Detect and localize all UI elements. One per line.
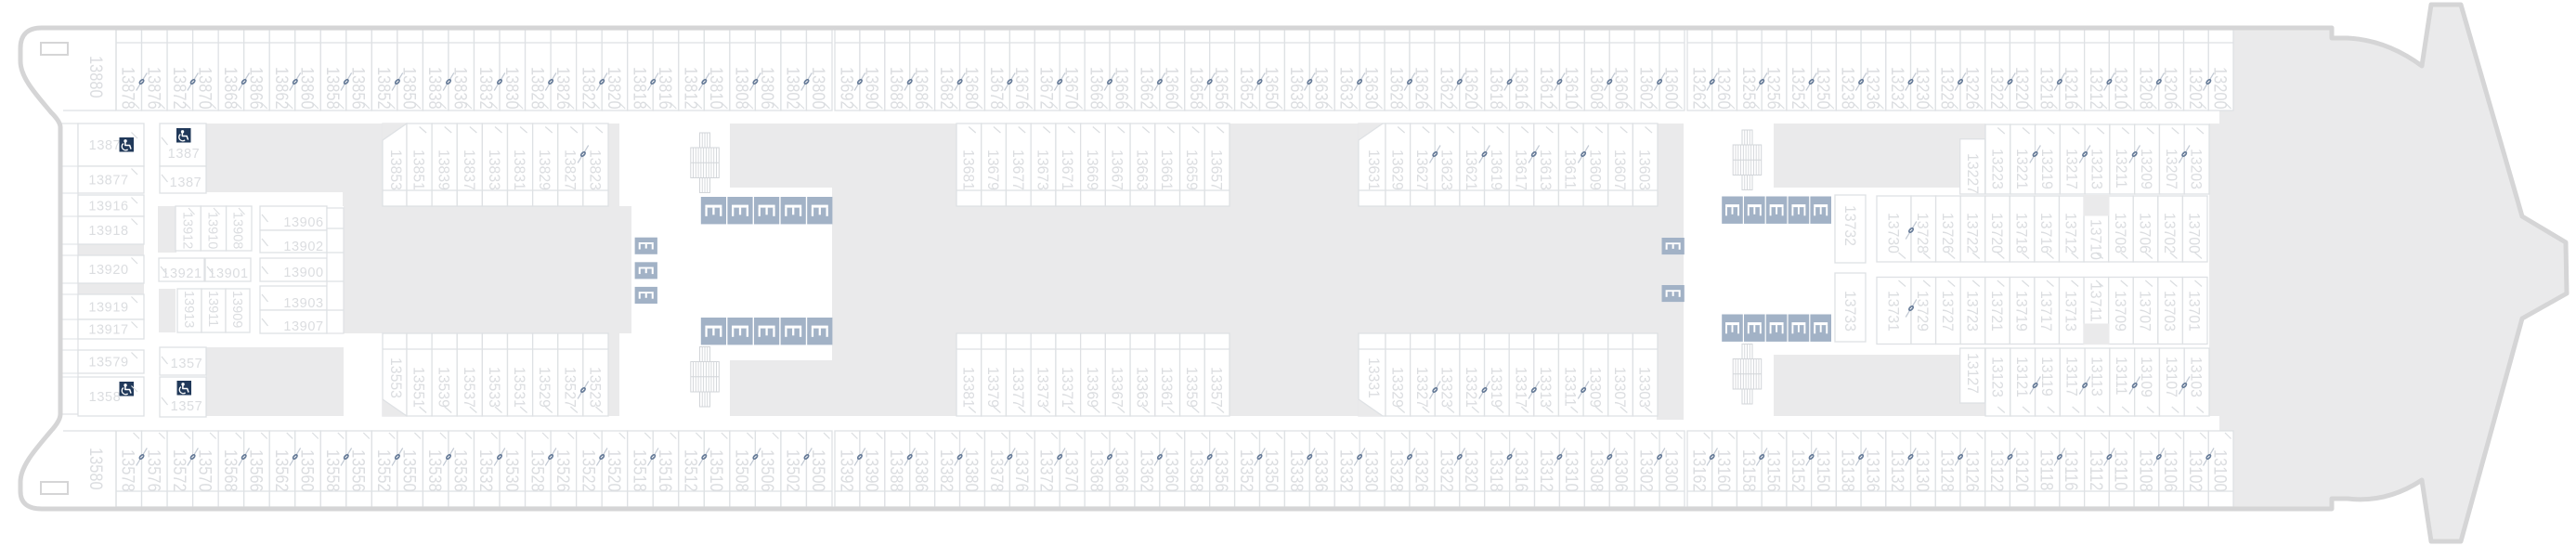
svg-text:13853: 13853 [387,149,405,190]
svg-text:13732: 13732 [1841,205,1859,246]
svg-text:13536: 13536 [450,449,471,492]
svg-text:13359: 13359 [1183,367,1201,408]
svg-text:13906: 13906 [283,215,323,230]
svg-text:13902: 13902 [283,240,323,254]
svg-text:13717: 13717 [2037,291,2055,331]
svg-text:13318: 13318 [1487,449,1507,492]
svg-text:13328: 13328 [1386,449,1407,492]
svg-text:13223: 13223 [1988,149,2006,189]
svg-text:13708: 13708 [2112,213,2129,253]
svg-text:13720: 13720 [1988,213,2006,253]
svg-text:13309: 13309 [1586,367,1604,408]
svg-text:13222: 13222 [1987,67,2008,110]
svg-text:13357: 13357 [1207,367,1225,408]
svg-text:13603: 13603 [1635,149,1653,190]
svg-text:13202: 13202 [2186,67,2206,110]
svg-text:13388: 13388 [887,449,907,492]
svg-text:13688: 13688 [887,67,907,110]
svg-text:13386: 13386 [912,449,932,492]
svg-text:13907: 13907 [283,319,323,334]
svg-text:13579: 13579 [88,356,128,370]
svg-text:13377: 13377 [1009,367,1027,408]
svg-text:13150: 13150 [1814,449,1834,492]
svg-text:13917: 13917 [88,323,128,338]
svg-text:13523: 13523 [586,367,604,408]
svg-text:13518: 13518 [630,449,650,492]
svg-text:13621: 13621 [1463,149,1480,190]
svg-text:13663: 13663 [1133,149,1151,190]
svg-text:13209: 13209 [2138,149,2155,189]
svg-text:13562: 13562 [272,449,293,492]
svg-text:13823: 13823 [586,149,604,190]
svg-text:13381: 13381 [959,367,977,408]
svg-text:13510: 13510 [707,449,727,492]
svg-text:13100: 13100 [2210,449,2231,492]
svg-text:13662: 13662 [1137,67,1157,110]
svg-text:13719: 13719 [2012,291,2030,331]
svg-text:13711: 13711 [2087,282,2104,322]
svg-text:13921: 13921 [162,266,202,281]
svg-text:13208: 13208 [2136,67,2156,110]
svg-text:13136: 13136 [1863,449,1883,492]
svg-text:13361: 13361 [1158,367,1176,408]
svg-text:13527: 13527 [561,367,579,408]
svg-text:13158: 13158 [1738,449,1759,492]
svg-text:13908: 13908 [229,212,244,249]
svg-text:13373: 13373 [1034,367,1051,408]
svg-text:13730: 13730 [1884,213,1902,253]
svg-text:13878: 13878 [118,67,138,110]
svg-text:13319: 13319 [1488,367,1505,408]
svg-text:13538: 13538 [425,449,446,492]
svg-text:13529: 13529 [536,367,553,408]
svg-text:13322: 13322 [1437,449,1457,492]
svg-text:13350: 13350 [1262,449,1282,492]
svg-text:13612: 13612 [1537,67,1557,110]
svg-text:13311: 13311 [1562,367,1580,407]
svg-text:13520: 13520 [605,449,625,492]
svg-text:13116: 13116 [2062,449,2082,490]
svg-text:13526: 13526 [553,449,573,492]
svg-text:13356: 13356 [1212,449,1232,492]
svg-text:13838: 13838 [425,67,446,110]
svg-text:13539: 13539 [435,367,452,408]
svg-text:13570: 13570 [195,449,215,492]
svg-text:13672: 13672 [1036,67,1057,110]
svg-text:13911: 13911 [205,291,220,327]
svg-text:13368: 13368 [1086,449,1107,492]
svg-text:13566: 13566 [246,449,267,492]
svg-text:13682: 13682 [937,67,957,110]
svg-text:13111: 13111 [2113,357,2130,396]
svg-text:13107: 13107 [2163,357,2180,397]
svg-text:13306: 13306 [1611,449,1632,492]
svg-text:1387: 1387 [170,175,202,190]
svg-text:13317: 13317 [1512,367,1529,408]
svg-text:13360: 13360 [1162,449,1182,492]
svg-text:13722: 13722 [1963,213,1981,253]
svg-text:13390: 13390 [862,449,882,492]
svg-text:13307: 13307 [1611,367,1629,408]
svg-text:13858: 13858 [323,67,344,110]
svg-text:13331: 13331 [1365,357,1383,398]
svg-text:13207: 13207 [2163,149,2180,189]
svg-text:13378: 13378 [987,449,1008,492]
svg-text:13880: 13880 [86,56,107,98]
svg-text:13313: 13313 [1537,367,1555,408]
svg-text:1357: 1357 [171,399,203,414]
svg-text:13522: 13522 [579,449,599,492]
svg-text:13531: 13531 [511,367,528,408]
svg-text:13127: 13127 [1964,353,1982,394]
svg-text:13802: 13802 [783,67,803,110]
svg-text:13102: 13102 [2186,449,2206,492]
svg-text:1357: 1357 [171,357,203,371]
svg-text:13300: 13300 [1661,449,1682,492]
svg-text:13627: 13627 [1413,149,1431,190]
svg-text:13362: 13362 [1137,449,1157,492]
svg-text:1358: 1358 [89,390,122,405]
svg-text:13710: 13710 [2087,219,2104,260]
svg-text:13372: 13372 [1036,449,1057,492]
svg-text:13622: 13622 [1437,67,1457,110]
svg-text:13920: 13920 [88,263,128,278]
svg-text:13369: 13369 [1084,367,1101,408]
svg-text:13379: 13379 [984,367,1002,408]
svg-text:13733: 13733 [1841,291,1859,331]
svg-text:13556: 13556 [348,449,369,492]
svg-text:13679: 13679 [984,149,1002,190]
svg-text:13560: 13560 [297,449,318,492]
svg-text:13832: 13832 [476,67,497,110]
svg-text:13382: 13382 [937,449,957,492]
svg-text:13327: 13327 [1413,367,1431,408]
svg-text:13320: 13320 [1462,449,1482,492]
svg-text:13818: 13818 [630,67,650,110]
svg-text:13623: 13623 [1438,149,1455,190]
svg-text:13903: 13903 [283,296,323,311]
svg-text:13121: 13121 [2013,357,2031,397]
svg-text:13721: 13721 [1988,291,2006,331]
svg-text:13312: 13312 [1537,449,1557,492]
svg-text:13512: 13512 [681,449,701,492]
svg-text:13551: 13551 [410,367,427,408]
svg-text:13232: 13232 [1888,67,1908,110]
svg-text:13900: 13900 [283,266,323,280]
svg-text:13112: 13112 [2087,449,2107,490]
svg-text:13669: 13669 [1084,149,1101,190]
svg-text:13716: 13716 [2037,213,2055,253]
svg-text:13668: 13668 [1086,67,1107,110]
svg-text:13916: 13916 [88,200,128,214]
svg-text:13217: 13217 [2063,149,2081,189]
svg-text:13872: 13872 [169,67,189,110]
svg-text:13703: 13703 [2161,291,2179,331]
svg-text:13302: 13302 [1636,449,1657,492]
svg-text:13528: 13528 [527,449,548,492]
svg-text:13901: 13901 [208,266,248,281]
svg-text:13631: 13631 [1365,149,1383,190]
svg-text:13726: 13726 [1939,213,1957,253]
svg-text:13516: 13516 [656,449,676,492]
svg-text:13221: 13221 [2013,149,2031,189]
svg-text:13707: 13707 [2136,291,2153,331]
svg-text:13602: 13602 [1636,67,1657,110]
svg-text:13910: 13910 [204,212,219,249]
svg-text:13323: 13323 [1438,367,1455,408]
svg-text:13659: 13659 [1183,149,1201,190]
svg-text:13120: 13120 [2011,449,2032,492]
svg-text:13700: 13700 [2186,213,2204,253]
svg-text:13262: 13262 [1689,67,1710,110]
svg-text:13530: 13530 [501,449,522,492]
svg-text:13572: 13572 [169,449,189,492]
svg-text:13619: 13619 [1488,149,1505,190]
svg-text:13110: 13110 [2111,449,2131,490]
svg-text:13681: 13681 [959,149,977,190]
svg-text:13617: 13617 [1512,149,1529,190]
svg-text:13728: 13728 [1914,213,1932,253]
svg-text:13156: 13156 [1763,449,1784,492]
svg-text:13152: 13152 [1789,449,1809,492]
svg-text:13122: 13122 [1987,449,2008,492]
svg-text:13330: 13330 [1361,449,1382,492]
svg-text:13367: 13367 [1109,367,1126,408]
svg-text:13113: 13113 [2088,357,2105,396]
svg-text:13252: 13252 [1789,67,1809,110]
svg-text:13629: 13629 [1388,149,1406,190]
svg-text:13392: 13392 [837,449,857,492]
svg-text:13227: 13227 [1964,153,1982,194]
svg-text:13909: 13909 [229,291,244,328]
svg-text:13118: 13118 [2036,449,2057,490]
svg-text:13731: 13731 [1884,291,1902,331]
svg-text:13609: 13609 [1586,149,1604,190]
svg-text:13828: 13828 [527,67,548,110]
svg-text:13851: 13851 [410,149,427,190]
svg-text:13332: 13332 [1336,449,1357,492]
svg-text:13678: 13678 [987,67,1008,110]
svg-text:13822: 13822 [579,67,599,110]
svg-text:13837: 13837 [461,149,478,190]
svg-text:13329: 13329 [1388,367,1406,408]
svg-text:13380: 13380 [962,449,982,492]
svg-text:13211: 13211 [2113,149,2130,188]
svg-text:13508: 13508 [732,449,752,492]
svg-text:13827: 13827 [561,149,579,190]
svg-text:13868: 13868 [221,67,241,110]
svg-text:13608: 13608 [1586,67,1607,110]
svg-text:13580: 13580 [86,448,107,490]
svg-text:13611: 13611 [1562,149,1580,189]
svg-text:13652: 13652 [1237,67,1257,110]
svg-text:1387: 1387 [89,138,122,153]
svg-text:13363: 13363 [1133,367,1151,408]
svg-text:13506: 13506 [758,449,778,492]
svg-text:13162: 13162 [1689,449,1710,492]
svg-text:13667: 13667 [1109,149,1126,190]
svg-text:13228: 13228 [1937,67,1958,110]
svg-text:13203: 13203 [2187,149,2205,189]
svg-text:13532: 13532 [476,449,497,492]
svg-text:13671: 13671 [1059,149,1076,190]
svg-text:13376: 13376 [1011,449,1032,492]
svg-text:13160: 13160 [1714,449,1735,492]
svg-text:13919: 13919 [88,301,128,316]
svg-text:13607: 13607 [1611,149,1629,190]
svg-text:13831: 13831 [511,149,528,190]
svg-text:13877: 13877 [88,174,128,188]
svg-text:13128: 13128 [1937,449,1958,492]
svg-text:13370: 13370 [1061,449,1082,492]
svg-text:13632: 13632 [1336,67,1357,110]
svg-text:13618: 13618 [1487,67,1507,110]
svg-text:13338: 13338 [1286,449,1307,492]
svg-text:13701: 13701 [2186,291,2204,331]
svg-text:13371: 13371 [1059,367,1076,408]
svg-text:1387: 1387 [168,147,201,162]
svg-text:13709: 13709 [2112,291,2129,331]
svg-text:13126: 13126 [1962,449,1983,492]
svg-text:13613: 13613 [1537,149,1555,190]
svg-text:13661: 13661 [1158,149,1176,190]
svg-text:13552: 13552 [374,449,395,492]
svg-text:13502: 13502 [783,449,803,492]
svg-text:13852: 13852 [374,67,395,110]
svg-text:13537: 13537 [461,367,478,408]
svg-text:13712: 13712 [2062,213,2080,253]
svg-text:13727: 13727 [1939,291,1957,331]
svg-text:13829: 13829 [536,149,553,190]
svg-text:13119: 13119 [2038,357,2056,396]
svg-text:13713: 13713 [2062,291,2080,331]
svg-text:13918: 13918 [88,224,128,239]
svg-text:13130: 13130 [1913,449,1933,492]
svg-text:13321: 13321 [1463,367,1480,408]
svg-text:13673: 13673 [1034,149,1051,190]
svg-text:13657: 13657 [1207,149,1225,190]
svg-text:13213: 13213 [2088,149,2105,189]
svg-text:13723: 13723 [1963,291,1981,331]
svg-text:13677: 13677 [1009,149,1027,190]
svg-text:13839: 13839 [435,149,452,190]
svg-text:13558: 13558 [323,449,344,492]
svg-text:13550: 13550 [399,449,420,492]
svg-text:13500: 13500 [809,449,829,492]
svg-text:13729: 13729 [1914,291,1932,331]
svg-text:13352: 13352 [1237,449,1257,492]
svg-text:13106: 13106 [2161,449,2181,492]
svg-text:13358: 13358 [1187,449,1207,492]
svg-text:13123: 13123 [1988,357,2006,397]
svg-text:13912: 13912 [179,212,194,249]
svg-text:13138: 13138 [1838,449,1858,492]
svg-text:13692: 13692 [837,67,857,110]
svg-text:13862: 13862 [272,67,293,110]
svg-text:13638: 13638 [1286,67,1307,110]
svg-text:13308: 13308 [1586,449,1607,492]
svg-text:13578: 13578 [118,449,138,492]
svg-text:13326: 13326 [1412,449,1432,492]
svg-text:13310: 13310 [1562,449,1582,492]
svg-text:13658: 13658 [1187,67,1207,110]
svg-text:13336: 13336 [1311,449,1332,492]
svg-text:13568: 13568 [221,449,241,492]
svg-text:13808: 13808 [732,67,752,110]
svg-text:13812: 13812 [681,67,701,110]
svg-text:13238: 13238 [1838,67,1858,110]
svg-text:13833: 13833 [486,149,503,190]
svg-text:13303: 13303 [1635,367,1653,408]
svg-text:13366: 13366 [1112,449,1132,492]
svg-text:13718: 13718 [2012,213,2030,253]
svg-text:13316: 13316 [1512,449,1532,492]
svg-text:13702: 13702 [2161,213,2179,253]
svg-text:13108: 13108 [2136,449,2156,492]
svg-text:13132: 13132 [1888,449,1908,492]
svg-text:13212: 13212 [2087,67,2107,110]
svg-text:13628: 13628 [1386,67,1407,110]
svg-text:13258: 13258 [1738,67,1759,110]
svg-text:13533: 13533 [486,367,503,408]
svg-text:13913: 13913 [181,291,196,328]
svg-text:13117: 13117 [2063,357,2081,396]
svg-text:13553: 13553 [387,357,405,398]
svg-text:13218: 13218 [2036,67,2057,110]
svg-text:13219: 13219 [2038,149,2056,189]
svg-text:13706: 13706 [2136,213,2153,253]
svg-text:13576: 13576 [144,449,164,492]
